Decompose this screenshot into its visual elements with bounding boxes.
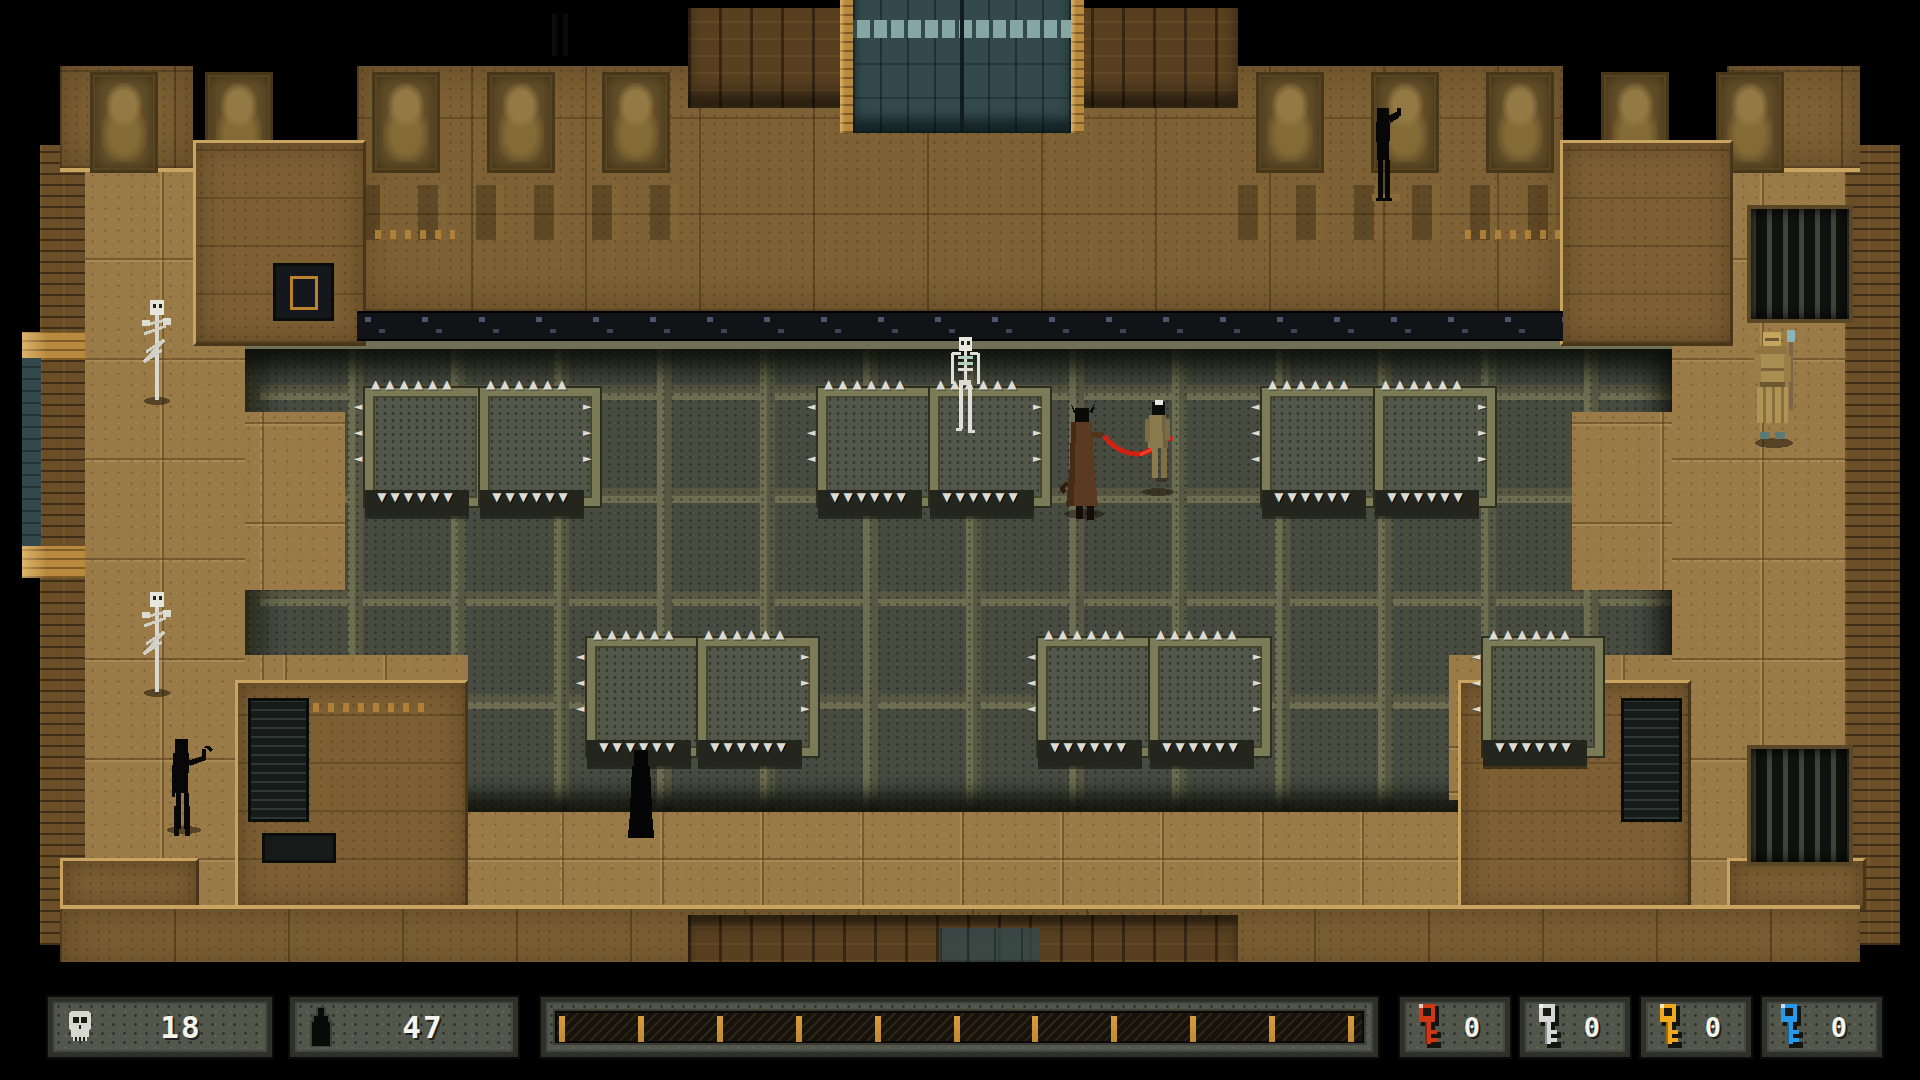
progress-tick [1111, 1016, 1117, 1042]
platform-top-spikes: ▲▲▲▲▲▲ [1156, 627, 1252, 641]
platform-side-spikes: ►►► [583, 394, 595, 472]
silver-key-panel: 0 [1520, 997, 1630, 1057]
progress-bar-track [555, 1011, 1364, 1043]
progress-tick [1190, 1016, 1196, 1042]
silver-key-icon [1535, 1004, 1561, 1050]
progress-tick [1348, 1016, 1354, 1042]
west-door-cap-bottom [22, 546, 85, 578]
platform-top [1262, 388, 1382, 506]
platform-top [1483, 638, 1603, 756]
progress-tick [796, 1016, 802, 1042]
progress-tick [559, 1016, 565, 1042]
platform-front-spikes: ▼▼▼▼▼▼ [818, 490, 922, 516]
floor-recess-left [262, 833, 336, 863]
platform-side-spikes: ◄◄◄ [1027, 644, 1039, 722]
statue-relief-panel [1486, 72, 1554, 173]
spirit-counter-panel: 47 [290, 997, 518, 1057]
progress-tick [954, 1016, 960, 1042]
portcullis-top-right[interactable] [1747, 205, 1853, 323]
red-key-panel: 0 [1400, 997, 1510, 1057]
gold-key-count: 0 [1682, 1012, 1746, 1043]
platform-top-spikes: ▲▲▲▲▲▲ [1489, 627, 1585, 641]
hud-bar: 18 47 0 0 0 0 [0, 962, 1920, 1080]
platform-side-spikes: ◄◄◄ [1251, 394, 1263, 472]
floor-notch-left [245, 412, 345, 590]
platform-front-spikes: ▼▼▼▼▼▼ [480, 490, 584, 516]
gold-key-icon [1656, 1004, 1682, 1050]
red-key-icon [1415, 1004, 1441, 1050]
main-door[interactable] [853, 0, 1071, 133]
statue-relief-panel [372, 72, 440, 173]
level-progress-panel [541, 997, 1378, 1057]
floor-notch-right [1572, 412, 1672, 590]
platform-front-spikes: ▼▼▼▼▼▼ [1150, 740, 1254, 766]
platform-top [698, 638, 818, 756]
west-door-cap-top [22, 332, 85, 360]
platform-side-spikes: ◄◄◄ [576, 644, 588, 722]
spiked-platform: ▼▼▼▼▼▼▲▲▲▲▲▲◄◄◄ [1262, 388, 1366, 516]
platform-top [587, 638, 707, 756]
platform-top-spikes: ▲▲▲▲▲▲ [1268, 377, 1364, 391]
wall-block-right [1560, 140, 1733, 346]
blue-key-panel: 0 [1762, 997, 1882, 1057]
platform-top-spikes: ▲▲▲▲▲▲ [371, 377, 467, 391]
spirit-count: 47 [333, 1009, 513, 1045]
red-key-count: 0 [1441, 1012, 1505, 1043]
platform-side-spikes: ►►► [801, 644, 813, 722]
platform-top [1038, 638, 1158, 756]
platform-top-spikes: ▲▲▲▲▲▲ [1044, 627, 1140, 641]
progress-tick [1269, 1016, 1275, 1042]
spiked-platform: ▼▼▼▼▼▼▲▲▲▲▲▲►►► [1375, 388, 1479, 516]
skull-count: 18 [95, 1009, 267, 1045]
wall-plaque [273, 263, 334, 321]
portcullis-bottom-right[interactable] [1747, 745, 1853, 866]
platform-top-spikes: ▲▲▲▲▲▲ [824, 377, 920, 391]
platform-top [480, 388, 600, 506]
dark-figure-icon [309, 1007, 333, 1047]
platform-front-spikes: ▼▼▼▼▼▼ [1262, 490, 1366, 516]
bottom-step-left [60, 858, 199, 911]
platform-front-spikes: ▼▼▼▼▼▼ [1483, 740, 1587, 766]
arrow-slit [563, 14, 568, 56]
platform-side-spikes: ◄◄◄ [807, 394, 819, 472]
blue-key-count: 0 [1803, 1012, 1877, 1043]
door-pillar-right [1071, 0, 1084, 133]
progress-tick [1032, 1016, 1038, 1042]
bottom-door-hint [940, 928, 1040, 962]
spiked-platform: ▼▼▼▼▼▼▲▲▲▲▲▲◄◄◄ [587, 638, 691, 766]
platform-side-spikes: ►►► [1253, 644, 1265, 722]
spiked-platform: ▼▼▼▼▼▼▲▲▲▲▲▲◄◄◄ [818, 388, 922, 516]
spiked-platform: ▼▼▼▼▼▼▲▲▲▲▲▲◄◄◄ [365, 388, 469, 516]
platform-top-spikes: ▲▲▲▲▲▲ [593, 627, 689, 641]
spiked-platform: ▼▼▼▼▼▼▲▲▲▲▲▲►►► [480, 388, 584, 516]
statue-relief-panel [90, 72, 158, 173]
west-wall-planks [40, 145, 85, 945]
platform-top-spikes: ▲▲▲▲▲▲ [1381, 377, 1477, 391]
spiked-platform: ▼▼▼▼▼▼▲▲▲▲▲▲◄◄◄ [1038, 638, 1142, 766]
spiked-platform: ▼▼▼▼▼▼▲▲▲▲▲▲►►► [1150, 638, 1254, 766]
spiked-platform: ▼▼▼▼▼▼▲▲▲▲▲▲►►► [698, 638, 802, 766]
platform-top [365, 388, 485, 506]
progress-tick [717, 1016, 723, 1042]
platform-side-spikes: ◄◄◄ [1472, 644, 1484, 722]
statue-relief-panel [1256, 72, 1324, 173]
east-wall-planks [1845, 145, 1900, 945]
west-door[interactable] [22, 358, 41, 548]
bottom-glyphs-left [313, 703, 433, 712]
platform-front-spikes: ▼▼▼▼▼▼ [1375, 490, 1479, 516]
bottom-recess-right [1621, 698, 1682, 822]
arrow-slit [552, 14, 557, 56]
gold-key-panel: 0 [1641, 997, 1751, 1057]
platform-front-spikes: ▼▼▼▼▼▼ [698, 740, 802, 766]
game-viewport[interactable]: ▼▼▼▼▼▼▲▲▲▲▲▲◄◄◄▼▼▼▼▼▼▲▲▲▲▲▲►►►▼▼▼▼▼▼▲▲▲▲… [0, 0, 1920, 962]
statue-relief-panel [487, 72, 555, 173]
progress-tick [638, 1016, 644, 1042]
door-pillar-left [840, 0, 853, 133]
progress-tick [875, 1016, 881, 1042]
platform-side-spikes: ◄◄◄ [354, 394, 366, 472]
platform-front-spikes: ▼▼▼▼▼▼ [365, 490, 469, 516]
spiked-platform: ▼▼▼▼▼▼▲▲▲▲▲▲◄◄◄ [1483, 638, 1587, 766]
main-door-frame [840, 0, 1084, 133]
skull-icon [65, 1009, 95, 1045]
platform-top-spikes: ▲▲▲▲▲▲ [704, 627, 800, 641]
platform-side-spikes: ►►► [1478, 394, 1490, 472]
plaque-glyph [290, 276, 318, 310]
platform-front-spikes: ▼▼▼▼▼▼ [1038, 740, 1142, 766]
platform-front-spikes: ▼▼▼▼▼▼ [930, 490, 1034, 516]
bottom-recess-left [248, 698, 309, 822]
platform-side-spikes: ►►► [1033, 394, 1045, 472]
platform-top [818, 388, 938, 506]
blue-key-icon [1777, 1004, 1803, 1050]
wall-block-left [193, 140, 366, 346]
skull-counter-panel: 18 [48, 997, 272, 1057]
statue-relief-panel [602, 72, 670, 173]
silver-key-count: 0 [1561, 1012, 1625, 1043]
platform-top [1150, 638, 1270, 756]
platform-top-spikes: ▲▲▲▲▲▲ [486, 377, 582, 391]
door-split [960, 0, 964, 133]
platform-top [1375, 388, 1495, 506]
bottom-block-left [235, 680, 468, 911]
